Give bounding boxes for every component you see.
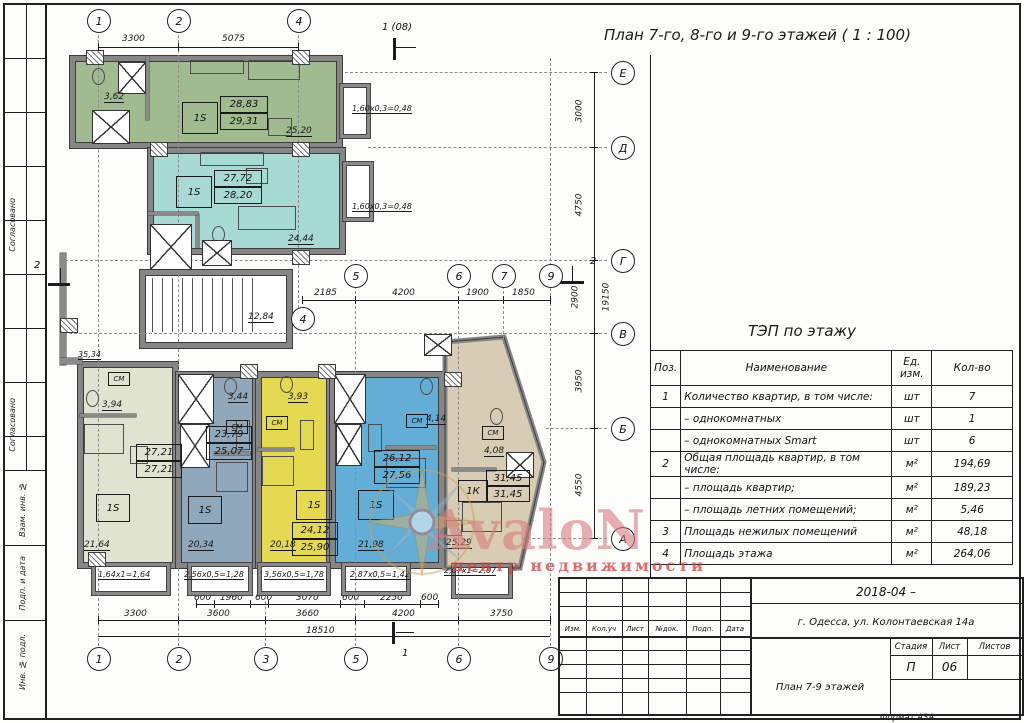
axis-line-2: [178, 30, 179, 646]
dim-line: [594, 72, 595, 538]
margin-label-inv: Инв. № подл.: [18, 634, 27, 690]
dim-tick: [265, 616, 266, 624]
titleblock-line: [686, 579, 687, 714]
tep-qty: 48,18: [932, 521, 1013, 543]
titleblock-stage-value: П: [890, 657, 932, 677]
apt-type-box: 1S: [96, 494, 130, 522]
stair-treads: [152, 278, 256, 332]
tep-name: – однокомнатных Smart: [681, 430, 892, 452]
tep-unit: м²: [892, 521, 932, 543]
margin-grid-line: [5, 620, 45, 621]
apt-area-box: 24,12: [292, 522, 338, 539]
apt-type-box: 1S: [296, 490, 332, 520]
dim-value: 4550: [574, 474, 584, 497]
tep-pos: [651, 408, 681, 430]
wall-segment: [146, 56, 149, 120]
titleblock-stage-header: Стадия: [890, 639, 932, 655]
titleblock-col-koluch: Кол.уч: [586, 622, 622, 636]
room-area: 3,44: [228, 392, 248, 403]
drawing-sheet: { "title": "План 7-го, 8-го и 9-го этаже…: [0, 0, 1024, 723]
axis-bubble-5: 5: [344, 647, 368, 671]
axis-bubble-4: 4: [291, 307, 315, 331]
wall-segment: [258, 448, 294, 451]
tep-qty: 194,69: [932, 452, 1013, 477]
apt-area-box: 27,72: [214, 170, 262, 187]
tep-name: Площадь этажа: [681, 543, 892, 565]
apt-area-box: 27,21: [136, 461, 182, 478]
section-marker-label: 2: [34, 260, 40, 271]
dim-tick: [590, 147, 598, 148]
titleblock-sheet-header: Лист: [932, 639, 967, 655]
dim-tick: [268, 600, 269, 608]
tep-name: Площадь нежилых помещений: [681, 521, 892, 543]
toilet: [420, 378, 433, 395]
titleblock-col-list: Лист: [622, 622, 648, 636]
tep-qty: 6: [932, 430, 1013, 452]
tep-pos: 2: [651, 452, 681, 477]
dim-value-total: 19150: [601, 283, 611, 312]
room-area: 35,34: [78, 350, 101, 360]
axis-line-7: [503, 286, 504, 344]
tep-pos: 1: [651, 386, 681, 408]
room-area: 24,44: [288, 234, 314, 245]
dim-value: 3000: [574, 100, 584, 123]
dim-tick: [364, 600, 365, 608]
wall-pier: [240, 364, 258, 379]
dim-tick: [302, 296, 303, 304]
axis-bubble-D: Д: [611, 136, 635, 160]
titleblock-line: [560, 678, 750, 679]
dim-value-total: 18510: [306, 626, 335, 636]
titleblock-line: [560, 650, 750, 651]
toilet: [92, 68, 105, 85]
tep-qty: 7: [932, 386, 1013, 408]
apt-type-box: 1S: [176, 176, 212, 208]
titleblock-line: [648, 579, 649, 714]
tep-row: – однокомнатных Smart шт 6: [651, 430, 1013, 452]
tep-title: ТЭП по этажу: [748, 322, 856, 340]
toilet: [86, 390, 99, 407]
dim-tick: [340, 600, 341, 608]
vent-shaft: [202, 240, 232, 266]
toilet: [280, 376, 293, 393]
axis-bubble-7: 7: [492, 264, 516, 288]
apt-area-box: 31,45: [486, 470, 530, 486]
section-marker-bar: [48, 283, 70, 286]
wall-pier: [444, 372, 462, 387]
title-block: Изм. Кол.уч Лист №док. Подп. Дата 2018-0…: [558, 577, 1024, 716]
kitchen-counter: [200, 152, 264, 166]
apt-area-box: 28,20: [214, 187, 262, 204]
room-area: 3,94: [102, 400, 122, 411]
dim-tick: [178, 616, 179, 624]
tep-qty: 1: [932, 408, 1013, 430]
dim-tick: [355, 296, 356, 304]
wall-pier: [292, 50, 310, 65]
titleblock-line: [560, 606, 750, 607]
section-marker-arrow: [396, 47, 416, 48]
tep-name: Количество квартир, в том числе:: [681, 386, 892, 408]
dim-value: 2900: [570, 286, 580, 309]
balcony-note: 2,56х0,5=1,28: [184, 570, 244, 580]
dim-tick: [98, 616, 99, 624]
titleblock-line: [560, 664, 750, 665]
apt-area-box: 26,12: [374, 450, 420, 467]
room-area: 4,14: [426, 414, 446, 425]
dim-tick: [590, 428, 598, 429]
dim-tick: [590, 333, 598, 334]
balcony-teal: [343, 162, 373, 221]
dim-tick: [214, 600, 215, 608]
toilet: [490, 408, 503, 425]
wall-pier: [292, 142, 310, 157]
axis-bubble-6: 6: [447, 647, 471, 671]
tep-unit: м²: [892, 543, 932, 565]
section-marker-arrow: [60, 268, 61, 283]
tep-pos: [651, 499, 681, 521]
margin-label-soglasovano-2: Согласовано: [8, 398, 17, 452]
dim-tick: [250, 600, 251, 608]
margin-grid-line: [5, 274, 45, 275]
washing-machine-box: СМ: [226, 420, 248, 434]
section-marker-label: 1: [402, 648, 408, 659]
dim-value: 4200: [392, 288, 415, 298]
apt-area-box: 28,83: [220, 96, 268, 113]
watermark-subtitle: центр недвижимости: [452, 556, 706, 575]
left-margin-divider: [45, 3, 47, 718]
room-area: 3,93: [288, 392, 308, 403]
dim-tick: [438, 600, 439, 608]
dim-tick: [503, 296, 504, 304]
section-marker-arrow: [572, 266, 573, 281]
dim-line: [98, 620, 550, 621]
elevator-shaft: [150, 224, 192, 270]
dim-tick: [196, 600, 197, 608]
tep-row: 1 Количество квартир, в том числе: шт 7: [651, 386, 1013, 408]
titleblock-line: [890, 679, 1022, 680]
axis-bubble-1: 1: [87, 647, 111, 671]
tep-name: – однокомнатных: [681, 408, 892, 430]
margin-grid-line: [5, 328, 45, 329]
axis-bubble-6: 6: [447, 264, 471, 288]
titleblock-line: [586, 579, 587, 714]
apt-area-box: 27,21: [136, 444, 182, 461]
bed: [216, 462, 248, 492]
washing-machine-box: СМ: [108, 372, 130, 386]
margin-grid-line: [5, 470, 45, 471]
axis-line-E: [345, 72, 607, 73]
tep-qty: 189,23: [932, 477, 1013, 499]
dim-value: 600: [421, 593, 438, 603]
dim-value: 2185: [314, 288, 337, 298]
tep-unit: шт: [892, 408, 932, 430]
dim-value: 5075: [222, 34, 245, 44]
drawing-title: План 7-го, 8-го и 9-го этажей ( 1 : 100): [604, 26, 911, 44]
vent-shaft: [334, 374, 366, 424]
washing-machine-box: СМ: [266, 416, 288, 430]
washing-machine-box: СМ: [482, 426, 504, 440]
tep-header-name: Наименование: [681, 351, 892, 386]
balcony-note: 1,64х1=1,64: [98, 570, 150, 580]
titleblock-col-podp: Подп.: [686, 622, 720, 636]
margin-grid-line: [5, 58, 45, 59]
dim-value: 1900: [466, 288, 489, 298]
tep-pos: [651, 430, 681, 452]
titleblock-line: [750, 603, 1022, 604]
apt-area-box: 25,90: [292, 539, 338, 556]
bed: [84, 424, 124, 454]
vent-shaft: [424, 334, 452, 356]
titleblock-col-dok: №док.: [648, 622, 686, 636]
titleblock-col-data: Дата: [720, 622, 750, 636]
tep-header-unit: Ед. изм.: [892, 351, 932, 386]
vent-shaft: [118, 62, 146, 94]
tep-unit: м²: [892, 452, 932, 477]
axis-bubble-B: Б: [611, 417, 635, 441]
dim-value: 4750: [574, 194, 584, 217]
tep-unit: шт: [892, 430, 932, 452]
washing-machine-box: СМ: [406, 414, 428, 428]
tep-name: Общая площадь квартир, в том числе:: [681, 452, 892, 477]
tep-row: 2 Общая площадь квартир, в том числе: м²…: [651, 452, 1013, 477]
axis-line-V: [64, 333, 607, 334]
dim-tick: [178, 43, 179, 51]
titleblock-col-izm: Изм.: [560, 622, 586, 636]
dim-tick: [458, 296, 459, 304]
tep-row: – площадь летних помещений; м² 5,46: [651, 499, 1013, 521]
titleblock-sheets-value: [967, 657, 1022, 677]
sofa: [238, 206, 296, 230]
axis-bubble-4: 4: [287, 9, 311, 33]
room-area: 20,34: [188, 540, 214, 551]
titleblock-sheets-header: Листов: [967, 639, 1022, 655]
section-marker-bar: [558, 281, 584, 284]
wall-segment: [80, 414, 136, 417]
room-area: 12,84: [248, 312, 274, 323]
tep-unit: м²: [892, 499, 932, 521]
section-marker-bar: [392, 622, 395, 644]
axis-bubble-9: 9: [539, 264, 563, 288]
dim-tick: [550, 296, 551, 304]
balcony-note: 1,60х0,3=0,48: [352, 104, 412, 114]
tep-pos: [651, 477, 681, 499]
wall-segment: [196, 214, 199, 248]
tep-row: – однокомнатных шт 1: [651, 408, 1013, 430]
axis-line-5: [355, 286, 356, 646]
axis-bubble-1: 1: [87, 9, 111, 33]
dim-tick: [590, 72, 598, 73]
apt-area-box: 25,07: [206, 443, 252, 460]
axis-bubble-E: Е: [611, 61, 635, 85]
vent-shaft: [336, 424, 362, 466]
dim-tick: [420, 600, 421, 608]
margin-label-vzam: Взам. инв. №: [18, 482, 27, 537]
balcony-note: 3,56х0,5=1,78: [264, 570, 324, 580]
dim-value: 3600: [207, 609, 230, 619]
tep-table: Поз. Наименование Ед. изм. Кол-во 1 Коли…: [650, 350, 1013, 565]
titleblock-sheet-value: 06: [932, 657, 967, 677]
tep-pos: 3: [651, 521, 681, 543]
room-area: 20,18: [270, 540, 296, 551]
dim-tick: [298, 43, 299, 51]
titleblock-line: [560, 636, 750, 638]
room-area: 4,08: [484, 446, 504, 457]
wall-pier: [318, 364, 336, 379]
dim-line: [98, 47, 298, 48]
dim-tick: [550, 616, 551, 624]
apt-area-box: 29,31: [220, 113, 268, 130]
tep-header-qty: Кол-во: [932, 351, 1013, 386]
tep-unit: шт: [892, 386, 932, 408]
dim-line: [98, 636, 550, 637]
wall-segment: [148, 212, 198, 215]
dim-value: 3950: [574, 370, 584, 393]
tep-row: 3 Площадь нежилых помещений м² 48,18: [651, 521, 1013, 543]
dim-line: [302, 300, 550, 301]
wall-pier: [86, 50, 104, 65]
axis-line-G: [60, 260, 607, 261]
axis-bubble-5: 5: [344, 264, 368, 288]
titleblock-doc-number: 2018-04 –: [750, 582, 1022, 602]
axis-line-D: [368, 147, 607, 148]
axis-bubble-2: 2: [167, 647, 191, 671]
margin-grid-line: [5, 545, 45, 546]
room-area: 21,64: [84, 540, 110, 551]
bed: [262, 456, 294, 486]
wall-pier: [88, 552, 106, 567]
section-marker-bar: [393, 38, 396, 60]
margin-grid-line: [5, 112, 45, 113]
kitchen-counter: [300, 420, 314, 450]
titleblock-drawing-name: План 7-9 этажей: [750, 675, 890, 699]
titleblock-line: [560, 592, 750, 593]
wall-pier: [60, 318, 78, 333]
wall-pier: [150, 142, 168, 157]
room-area: 3,62: [104, 92, 124, 103]
wall-segment: [386, 446, 436, 449]
titleblock-line: [622, 579, 623, 714]
tep-qty: 264,06: [932, 543, 1013, 565]
dim-value: 3660: [296, 609, 319, 619]
kitchen-counter: [368, 424, 382, 452]
axis-bubble-3: 3: [254, 647, 278, 671]
dim-value: 3300: [124, 609, 147, 619]
tep-name: – площадь летних помещений;: [681, 499, 892, 521]
dim-value: 3750: [490, 609, 513, 619]
titleblock-line: [560, 620, 750, 621]
balcony-note: 1,60х0,3=0,48: [352, 202, 412, 212]
dim-value: 1850: [512, 288, 535, 298]
titleblock-line: [890, 655, 1022, 656]
axis-bubble-2: 2: [167, 9, 191, 33]
axis-bubble-V: В: [611, 322, 635, 346]
dim-value: 4200: [392, 609, 415, 619]
dim-line: [196, 604, 438, 605]
titleblock-line: [720, 579, 721, 714]
kitchen-counter: [190, 60, 244, 74]
room-area: 25,20: [286, 126, 312, 137]
vent-shaft: [178, 374, 214, 424]
tep-name: – площадь квартир;: [681, 477, 892, 499]
wall-pier: [292, 250, 310, 265]
tep-unit: м²: [892, 477, 932, 499]
margin-label-podp: Подп. и дата: [18, 556, 27, 611]
dim-tick: [458, 616, 459, 624]
watermark-brand: AvaloN: [428, 498, 646, 562]
margin-grid-line: [5, 166, 45, 167]
section-marker-label: 1 (08): [382, 22, 412, 33]
axis-bubble-G: Г: [611, 249, 635, 273]
dim-value: 3300: [122, 34, 145, 44]
dim-tick: [98, 43, 99, 51]
section-marker-label: 2: [590, 256, 596, 267]
tep-qty: 5,46: [932, 499, 1013, 521]
titleblock-address: г. Одесса, ул. Колонтаевская 14а: [750, 609, 1022, 635]
tep-row: – площадь квартир; м² 189,23: [651, 477, 1013, 499]
margin-grid-line: [5, 382, 45, 383]
section-marker-arrow: [396, 632, 414, 633]
tep-header-pos: Поз.: [651, 351, 681, 386]
vent-shaft: [92, 110, 130, 144]
apt-type-box: 1S: [188, 496, 222, 524]
apt-type-box: 1S: [182, 102, 218, 134]
dim-tick: [355, 616, 356, 624]
titleblock-line: [560, 692, 750, 693]
margin-label-soglasovano-1: Согласовано: [8, 198, 17, 252]
margin-grid-line: [26, 3, 27, 471]
